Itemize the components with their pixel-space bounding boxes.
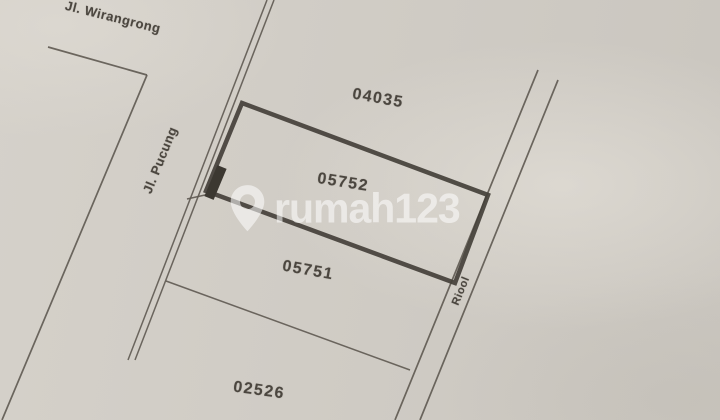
frontage-ink-mark <box>209 167 222 198</box>
pucung-west-edge <box>2 75 147 420</box>
parcel-05752-outline <box>206 103 488 283</box>
parcel-05751-02526-boundary <box>166 281 410 370</box>
cadastral-map: rumah123 04035057520575102526Jl. Wirangr… <box>0 0 720 420</box>
riool-east-edge <box>420 80 558 420</box>
riool-west-edge <box>395 70 538 420</box>
map-linework <box>0 0 720 420</box>
winangrong-street-edge <box>48 47 147 75</box>
